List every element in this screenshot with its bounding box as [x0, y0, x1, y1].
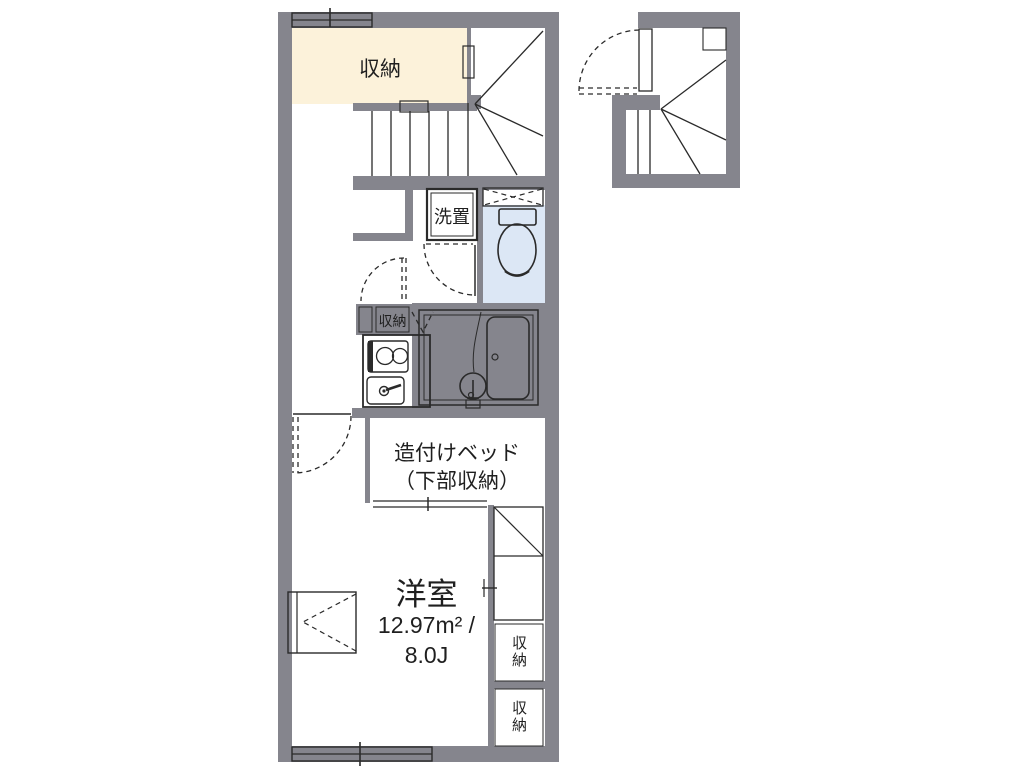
room-area-m2: 12.97m² /	[354, 612, 499, 639]
closet-right-top-label: 収納	[510, 636, 529, 670]
room-name: 洋室	[354, 569, 499, 614]
floor-plan-canvas	[0, 0, 1016, 772]
entrance-stair-walls	[612, 12, 740, 188]
room-area-jo: 8.0J	[354, 642, 499, 669]
refrigerator-space	[494, 507, 543, 620]
hall-closet-label: 収納	[375, 311, 410, 331]
kitchen-sink	[367, 377, 404, 404]
entrance-meter-box	[703, 28, 726, 50]
washroom-door	[361, 258, 406, 301]
floor-plan: 収納 洗置 収納 造付けベッド （下部収納） 洋室 12.97m² / 8.0J…	[0, 0, 1016, 772]
storage-top-label: 収納	[330, 53, 430, 83]
toilet-door	[424, 244, 475, 296]
entrance-stairs	[638, 60, 726, 174]
two-burner-stove	[368, 341, 408, 372]
entry-door	[293, 414, 351, 473]
bed-label-line2: （下部収納）	[367, 465, 547, 495]
washer-label: 洗置	[427, 203, 477, 229]
entrance-door	[579, 29, 652, 94]
wall-cabinet	[288, 592, 356, 653]
closet-right-bottom-label: 収納	[510, 701, 529, 735]
bed-label-line1: 造付けベッド	[367, 437, 547, 467]
window-bottom	[292, 742, 432, 766]
